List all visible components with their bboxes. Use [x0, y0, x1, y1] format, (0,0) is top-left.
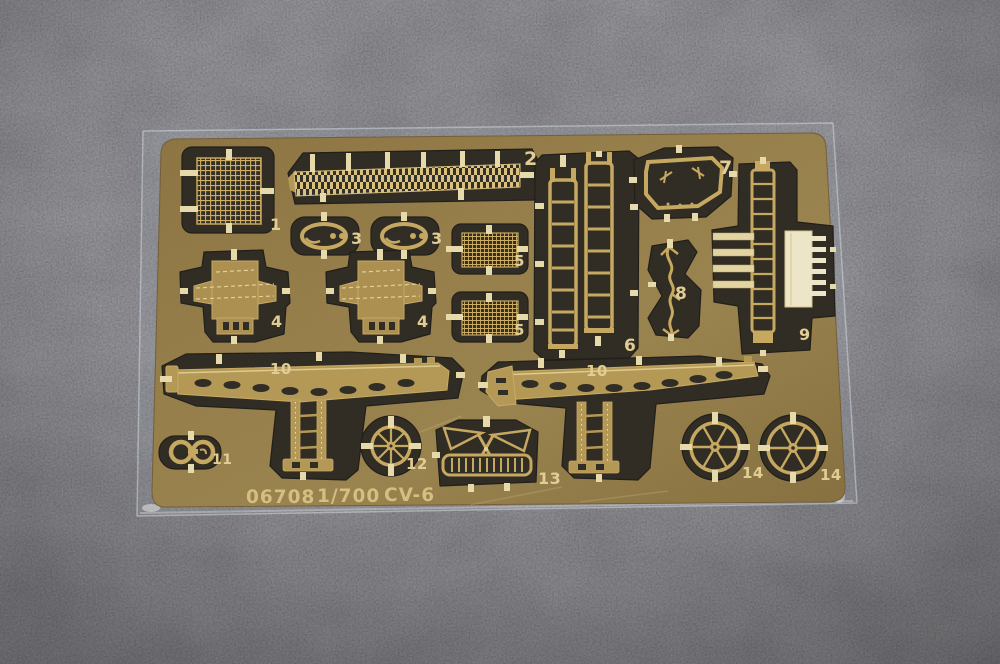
- photo-grain-overlay: [0, 0, 1000, 664]
- photo-of-etch-fret: 1 2 3 3 4 4 5 5 6 7 8 9 10 10 11 12 13 1…: [0, 0, 1000, 664]
